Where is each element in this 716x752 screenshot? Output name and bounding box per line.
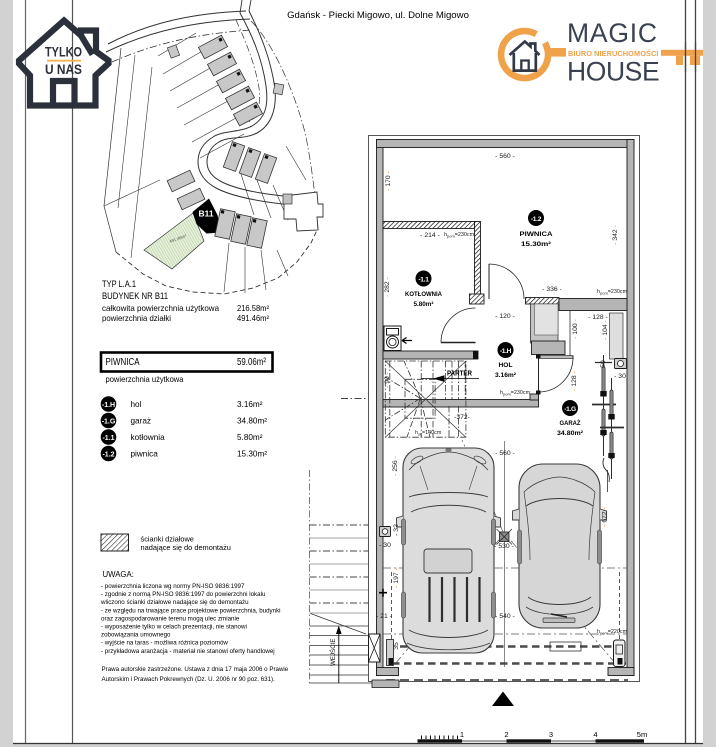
svg-text:- 128 -: - 128 - [588, 314, 608, 321]
svg-text:- 282 -: - 282 - [384, 277, 391, 297]
svg-text:oraz zagospodarowanie terenu m: oraz zagospodarowanie terenu mogą ulec z… [101, 615, 240, 622]
svg-text:PIWNICA: PIWNICA [520, 231, 553, 238]
svg-text:15.30m²: 15.30m² [237, 450, 267, 459]
svg-text:wliczono ścianki działowe nada: wliczono ścianki działowe nadające się d… [100, 599, 249, 606]
svg-text:3.16m²: 3.16m² [237, 400, 263, 409]
svg-text:powierzchnia użytkowa: powierzchnia użytkowa [106, 375, 184, 384]
svg-text:PARTER: PARTER [447, 371, 472, 378]
svg-text:- 256 -: - 256 - [392, 456, 399, 476]
svg-text:- 530 -: - 530 - [494, 543, 514, 550]
svg-text:- 100 -: - 100 - [572, 319, 579, 339]
svg-text:15.30m²: 15.30m² [521, 241, 551, 248]
svg-text:- 560 -: - 560 - [495, 450, 515, 457]
svg-text:50: 50 [600, 360, 607, 368]
svg-text:4: 4 [593, 730, 597, 739]
svg-text:-1.H: -1.H [102, 402, 115, 409]
svg-text:Gdańsk - Piecki Migowo, ul. Do: Gdańsk - Piecki Migowo, ul. Dolne Migowo [287, 10, 469, 21]
svg-text:5.80m²: 5.80m² [237, 433, 263, 442]
svg-text:- 170 -: - 170 - [385, 171, 392, 191]
svg-text:- 120 -: - 120 - [495, 313, 515, 320]
svg-text:-1.G: -1.G [564, 406, 576, 413]
svg-text:hsk=140cm: hsk=140cm [415, 430, 442, 437]
svg-text:piwnica: piwnica [131, 450, 159, 459]
svg-text:hpom=230cm: hpom=230cm [444, 232, 475, 239]
svg-text:- 197 -: - 197 - [393, 568, 400, 588]
svg-text:- wyposażenie tylko w celach p: - wyposażenie tylko w celach prezentacji… [101, 624, 247, 631]
svg-text:GARAŻ: GARAŻ [560, 418, 581, 427]
svg-text:35: 35 [393, 642, 400, 650]
svg-text:hpom=230cm: hpom=230cm [597, 289, 628, 296]
svg-text:- 90 -: - 90 - [384, 372, 391, 388]
svg-text:- ze względu na trwające prace: - ze względu na trwające prace projektow… [101, 607, 281, 614]
svg-text:34.80m²: 34.80m² [557, 430, 583, 437]
svg-text:hpom=220cm: hpom=220cm [597, 629, 628, 636]
svg-text:491.46m²: 491.46m² [237, 314, 269, 323]
svg-text:59.06m²: 59.06m² [237, 357, 267, 368]
svg-text:MAGIC: MAGIC [567, 18, 658, 48]
svg-text:TYP L.A.1: TYP L.A.1 [102, 279, 136, 289]
svg-text:- 104 -: - 104 - [602, 320, 609, 340]
svg-text:PIWNICA: PIWNICA [106, 357, 140, 368]
svg-text:całkowita powierzchnia użytkow: całkowita powierzchnia użytkowa [102, 304, 219, 313]
svg-text:powierzchnia działki: powierzchnia działki [102, 314, 171, 323]
svg-text:2: 2 [504, 730, 508, 739]
svg-text:-1.H: -1.H [500, 348, 512, 355]
svg-text:HOUSE: HOUSE [567, 57, 659, 87]
svg-text:- 32: - 32 [393, 524, 400, 536]
svg-text:hol: hol [131, 400, 142, 409]
svg-text:5.80m²: 5.80m² [414, 301, 434, 308]
svg-text:- 214 -: - 214 - [420, 232, 440, 239]
svg-text:- przykładowa aranżacja - mate: - przykładowa aranżacja - materiał nie s… [101, 648, 275, 655]
svg-text:3.16m²: 3.16m² [495, 372, 516, 379]
svg-text:-1.2: -1.2 [531, 216, 542, 223]
svg-text:- 336 -: - 336 - [542, 286, 562, 293]
svg-text:- 540 -: - 540 - [495, 613, 515, 620]
svg-text:hpom=230cm: hpom=230cm [500, 390, 531, 397]
svg-text:- 30: - 30 [614, 373, 626, 380]
svg-text:3: 3 [549, 730, 553, 739]
svg-text:34.80m²: 34.80m² [237, 417, 267, 426]
svg-text:KOTŁOWNIA: KOTŁOWNIA [405, 291, 442, 298]
svg-text:- 342 -: - 342 - [612, 225, 619, 245]
svg-text:-1.1: -1.1 [102, 435, 114, 442]
svg-text:Prawa autorskie zastrzeżone. U: Prawa autorskie zastrzeżone. Ustawa z dn… [102, 666, 289, 673]
svg-text:- 128 -: - 128 - [571, 371, 578, 391]
svg-text:5m: 5m [637, 730, 647, 739]
svg-text:-1.1: -1.1 [418, 277, 429, 284]
svg-text:nadające się do demontażu: nadające się do demontażu [141, 543, 231, 552]
svg-text:- zgodnie z normą PN-ISO 9836:: - zgodnie z normą PN-ISO 9836:1997 do po… [101, 591, 266, 598]
svg-text:1: 1 [460, 730, 464, 739]
svg-text:Autorskim i Prawach Pokrewnych: Autorskim i Prawach Pokrewnych (Dz. U. 2… [102, 676, 276, 683]
svg-text:WEJŚCIE: WEJŚCIE [329, 638, 337, 666]
svg-text:- wyjście na taras - możliwa r: - wyjście na taras - możliwa różnica poz… [101, 640, 228, 647]
svg-text:216.58m²: 216.58m² [237, 304, 269, 313]
svg-text:-1.2: -1.2 [102, 452, 114, 459]
svg-text:UWAGA:: UWAGA: [103, 570, 134, 579]
svg-text:HOL: HOL [499, 362, 513, 369]
svg-text:- 672 -: - 672 - [602, 507, 609, 527]
svg-text:- 21 -: - 21 - [376, 613, 392, 620]
svg-text:zobowiązania umownego: zobowiązania umownego [101, 632, 171, 639]
svg-text:U NAS: U NAS [45, 62, 82, 77]
svg-text:- 560 -: - 560 - [495, 153, 515, 160]
svg-text:garaż: garaż [131, 417, 151, 426]
svg-text:-372-: -372- [454, 414, 470, 421]
svg-text:- 30: - 30 [379, 542, 391, 549]
svg-text:kotłownia: kotłownia [131, 433, 166, 442]
svg-text:BUDYNEK NR B11: BUDYNEK NR B11 [102, 291, 168, 301]
svg-text:B11: B11 [198, 209, 213, 219]
svg-text:-1.G: -1.G [102, 419, 116, 426]
svg-text:TYLKO: TYLKO [45, 45, 82, 60]
svg-text:- powierzchnia liczona wg norm: - powierzchnia liczona wg normy PN-ISO 9… [101, 583, 245, 590]
